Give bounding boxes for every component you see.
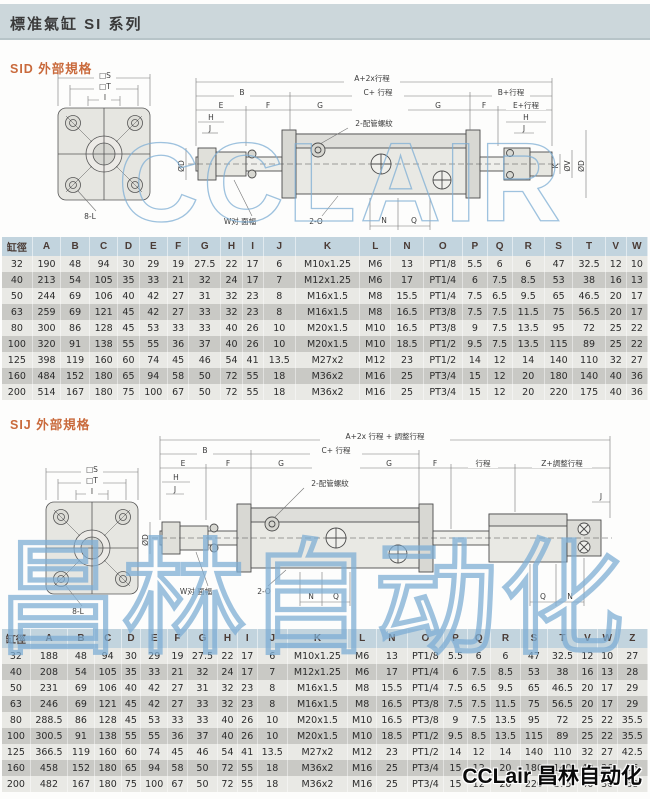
table-cell: 54 xyxy=(218,744,238,760)
table-cell: 40 xyxy=(2,272,32,288)
table-cell: 25 xyxy=(377,760,407,776)
table-cell: 72 xyxy=(221,368,242,384)
column-header: L xyxy=(360,237,391,256)
table-cell: 32.5 xyxy=(547,648,577,664)
table-row: 50244691064042273132238M16x1.5M815.5PT1/… xyxy=(2,288,648,304)
table-cell: 26 xyxy=(242,320,263,336)
sid-dim-square-s: □S xyxy=(99,71,111,80)
table-cell: 484 xyxy=(32,368,61,384)
table-cell: 180 xyxy=(89,368,118,384)
table-cell: 20 xyxy=(605,304,626,320)
sij-diagram: □S □T I 8-L A+2x 行程 xyxy=(0,426,650,626)
table-cell: PT1/4 xyxy=(407,680,444,696)
table-cell: 53 xyxy=(139,320,168,336)
column-header: S xyxy=(521,629,548,648)
table-cell: 33 xyxy=(168,712,188,728)
table-cell: 14 xyxy=(512,352,544,368)
table-cell: 22 xyxy=(218,648,238,664)
table-cell: 115 xyxy=(521,728,548,744)
table-cell: 13 xyxy=(391,256,423,272)
column-header: W xyxy=(597,629,617,648)
table-cell: 140 xyxy=(544,352,573,368)
table-cell: 6 xyxy=(487,256,512,272)
table-cell: M10 xyxy=(348,728,377,744)
table-cell: 53 xyxy=(544,272,573,288)
table-cell: PT3/4 xyxy=(407,776,444,792)
table-cell: 72 xyxy=(218,776,238,792)
table-cell: 213 xyxy=(32,272,61,288)
table-cell: 55 xyxy=(242,368,263,384)
table-cell: PT1/4 xyxy=(407,664,444,680)
column-header: R xyxy=(490,629,520,648)
sij-dim-g2: G xyxy=(386,459,392,468)
table-cell: 74 xyxy=(141,744,168,760)
table-cell: 27 xyxy=(597,744,617,760)
table-cell: 40 xyxy=(121,680,141,696)
column-header: J xyxy=(263,237,295,256)
table-cell: PT3/4 xyxy=(407,760,444,776)
table-cell: 16.5 xyxy=(391,304,423,320)
sij-flange-view xyxy=(46,502,138,594)
column-header: F xyxy=(168,629,188,648)
table-cell: 50 xyxy=(187,760,217,776)
table-cell: 100 xyxy=(139,384,168,400)
column-header: D xyxy=(121,629,141,648)
table-cell: 36 xyxy=(168,728,188,744)
table-cell: 22 xyxy=(597,712,617,728)
table-cell: 27 xyxy=(168,304,189,320)
table-cell: 121 xyxy=(89,304,118,320)
column-header: J xyxy=(257,629,287,648)
table-cell: 65 xyxy=(521,680,548,696)
table-cell: 7.5 xyxy=(462,288,487,304)
column-header: P xyxy=(462,237,487,256)
table-cell: 15 xyxy=(462,368,487,384)
table-cell: 244 xyxy=(32,288,61,304)
table-cell: 41 xyxy=(237,744,257,760)
table-cell: 40 xyxy=(118,288,139,304)
table-cell: 56.5 xyxy=(573,304,605,320)
table-cell: M10 xyxy=(360,320,391,336)
table-cell: 33 xyxy=(141,664,168,680)
table-cell: 15.5 xyxy=(391,288,423,304)
table-cell: 9.5 xyxy=(512,288,544,304)
table-cell: 7.5 xyxy=(462,304,487,320)
table-cell: 9.5 xyxy=(444,728,467,744)
column-header: S xyxy=(544,237,573,256)
sij-dim-c: C+ 行程 xyxy=(322,445,351,455)
column-header: R xyxy=(512,237,544,256)
table-cell: 7 xyxy=(257,664,287,680)
table-cell: 33 xyxy=(189,304,221,320)
table-cell: 74 xyxy=(139,352,168,368)
column-header: G xyxy=(189,237,221,256)
table-cell: 20 xyxy=(578,696,598,712)
sid-bore-d2-label: ØD xyxy=(177,160,186,172)
sid-rod-v-label: ØV xyxy=(563,160,572,172)
sid-dim-c: C+ 行程 xyxy=(364,87,393,97)
table-cell: 38 xyxy=(547,664,577,680)
table-cell: 21 xyxy=(168,664,188,680)
table-cell: 94 xyxy=(89,256,118,272)
table-row: 200514167180751006750725518M36x2M1625PT3… xyxy=(2,384,648,400)
sid-bore-d-label: ØD xyxy=(577,160,586,172)
sij-dim-h: H xyxy=(173,473,179,482)
table-cell: 31 xyxy=(187,680,217,696)
table-cell: 23 xyxy=(242,304,263,320)
table-cell: 13 xyxy=(626,272,647,288)
table-cell: 20 xyxy=(512,368,544,384)
table-cell: M8 xyxy=(360,304,391,320)
table-cell: 26 xyxy=(242,336,263,352)
table-cell: 138 xyxy=(94,728,121,744)
table-cell: M10x1.25 xyxy=(295,256,359,272)
table-cell: 54 xyxy=(221,352,242,368)
sid-side-view xyxy=(188,130,560,198)
sij-dim-g: G xyxy=(278,459,284,468)
column-header: A xyxy=(30,629,67,648)
table-cell: 46.5 xyxy=(573,288,605,304)
table-cell: 40 xyxy=(221,336,242,352)
sij-dim-e: E xyxy=(181,459,186,468)
table-cell: 35 xyxy=(121,664,141,680)
table-cell: 45 xyxy=(121,712,141,728)
table-cell: 7.5 xyxy=(487,304,512,320)
column-header: E xyxy=(139,237,168,256)
table-cell: 45 xyxy=(168,744,188,760)
table-cell: 25 xyxy=(578,728,598,744)
table-cell: PT1/2 xyxy=(407,744,444,760)
sid-dim-b-stroke: B+行程 xyxy=(498,87,525,97)
sij-dim-stroke: 行程 xyxy=(476,458,491,468)
table-cell: 17 xyxy=(237,648,257,664)
table-cell: PT1/2 xyxy=(407,728,444,744)
table-cell: 32 xyxy=(218,696,238,712)
table-cell: 8 xyxy=(263,288,295,304)
table-cell: 100 xyxy=(2,728,30,744)
sid-dim-h2: H xyxy=(523,113,529,122)
column-header: I xyxy=(242,237,263,256)
table-cell: 10 xyxy=(263,320,295,336)
table-cell: 17 xyxy=(626,288,647,304)
table-cell: 110 xyxy=(547,744,577,760)
table-cell: 18.5 xyxy=(377,728,407,744)
table-cell: M6 xyxy=(360,272,391,288)
table-cell: M36x2 xyxy=(295,368,359,384)
column-header: C xyxy=(89,237,118,256)
table-cell: 18 xyxy=(257,776,287,792)
table-cell: 119 xyxy=(61,352,90,368)
table-cell: 40 xyxy=(218,712,238,728)
column-header: K xyxy=(295,237,359,256)
column-header: G xyxy=(187,629,217,648)
table-cell: 18.5 xyxy=(391,336,423,352)
sid-flange-view xyxy=(58,108,150,200)
column-header: O xyxy=(407,629,444,648)
table-cell: 50 xyxy=(189,384,221,400)
table-row: 12539811916060744546544113.5M27x2M1223PT… xyxy=(2,352,648,368)
table-cell: 58 xyxy=(168,368,189,384)
table-cell: 180 xyxy=(89,384,118,400)
table-cell: PT1/2 xyxy=(423,352,462,368)
table-cell: 7.5 xyxy=(467,696,490,712)
table-cell: 65 xyxy=(121,760,141,776)
table-cell: 46.5 xyxy=(547,680,577,696)
table-cell: 50 xyxy=(187,776,217,792)
table-cell: 259 xyxy=(32,304,61,320)
table-cell: 23 xyxy=(391,352,423,368)
table-cell: 25 xyxy=(377,776,407,792)
sid-dim-f: F xyxy=(266,101,270,110)
table-row: 100300.59113855553637402610M20x1.5M1018.… xyxy=(2,728,648,744)
sij-dim-square-s: □S xyxy=(86,465,98,474)
table-cell: 200 xyxy=(2,776,30,792)
table-cell: 180 xyxy=(94,760,121,776)
table-cell: 72 xyxy=(573,320,605,336)
sij-dim-n2: N xyxy=(567,592,573,601)
table-cell: 10 xyxy=(257,712,287,728)
table-cell: 180 xyxy=(544,368,573,384)
table-cell: 7.5 xyxy=(444,680,467,696)
table-cell: 9 xyxy=(444,712,467,728)
table-cell: M16x1.5 xyxy=(287,696,347,712)
table-cell: 47 xyxy=(521,648,548,664)
table-cell: 22 xyxy=(597,728,617,744)
column-header: V xyxy=(605,237,626,256)
sij-dim-f2: F xyxy=(433,459,437,468)
table-cell: 366.5 xyxy=(30,744,67,760)
table-cell: 13.5 xyxy=(257,744,287,760)
column-header: H xyxy=(221,237,242,256)
table-cell: 75 xyxy=(544,304,573,320)
table-cell: 55 xyxy=(139,336,168,352)
table-cell: M36x2 xyxy=(295,384,359,400)
table-cell: 140 xyxy=(521,744,548,760)
table-cell: 45 xyxy=(118,320,139,336)
sid-dim-e: E xyxy=(219,101,224,110)
table-cell: 56.5 xyxy=(547,696,577,712)
table-cell: 7.5 xyxy=(487,320,512,336)
table-cell: M16x1.5 xyxy=(287,680,347,696)
table-cell: 55 xyxy=(121,728,141,744)
table-cell: 23 xyxy=(377,744,407,760)
table-cell: 6 xyxy=(512,256,544,272)
table-cell: 38 xyxy=(573,272,605,288)
table-cell: 6 xyxy=(467,648,490,664)
table-cell: 8.5 xyxy=(490,664,520,680)
table-cell: 40 xyxy=(605,368,626,384)
table-cell: 27.5 xyxy=(189,256,221,272)
table-cell: 69 xyxy=(68,680,95,696)
table-cell: 16 xyxy=(578,664,598,680)
table-cell: 42.5 xyxy=(617,744,647,760)
table-cell: 20 xyxy=(512,384,544,400)
table-cell: 138 xyxy=(89,336,118,352)
table-cell: 5.5 xyxy=(444,648,467,664)
table-cell: 32.5 xyxy=(573,256,605,272)
table-cell: 32 xyxy=(2,256,32,272)
table-cell: 72 xyxy=(547,712,577,728)
table-cell: M36x2 xyxy=(287,760,347,776)
table-cell: 9.5 xyxy=(462,336,487,352)
table-cell: M12 xyxy=(348,744,377,760)
table-cell: 180 xyxy=(94,776,121,792)
sid-table: 缸徑ABCDEFGHIJKLNOPQRSTVW 3219048943029192… xyxy=(2,237,648,400)
table-cell: 91 xyxy=(61,336,90,352)
table-cell: 23 xyxy=(242,288,263,304)
table-cell: 36 xyxy=(168,336,189,352)
table-cell: 152 xyxy=(68,760,95,776)
table-cell: 48 xyxy=(68,648,95,664)
column-header: F xyxy=(168,237,189,256)
sij-dim-n: N xyxy=(308,592,314,601)
table-cell: 18 xyxy=(263,368,295,384)
table-cell: 75 xyxy=(118,384,139,400)
table-cell: 45 xyxy=(118,304,139,320)
table-cell: M20x1.5 xyxy=(295,336,359,352)
table-cell: 75 xyxy=(521,696,548,712)
table-cell: 55 xyxy=(242,384,263,400)
sij-dim-j: J xyxy=(173,485,176,494)
table-cell: 105 xyxy=(89,272,118,288)
table-cell: 32 xyxy=(578,744,598,760)
table-cell: 48 xyxy=(61,256,90,272)
table-cell: M6 xyxy=(348,648,377,664)
table-cell: 175 xyxy=(573,384,605,400)
table-cell: 46 xyxy=(189,352,221,368)
table-cell: 8 xyxy=(257,696,287,712)
table-cell: PT3/4 xyxy=(423,368,462,384)
column-header: T xyxy=(573,237,605,256)
table-cell: PT3/4 xyxy=(423,384,462,400)
table-cell: M8 xyxy=(348,680,377,696)
table-cell: 32 xyxy=(218,680,238,696)
table-cell: 13.5 xyxy=(490,712,520,728)
table-cell: 69 xyxy=(61,288,90,304)
table-cell: 25 xyxy=(605,320,626,336)
table-cell: M6 xyxy=(348,664,377,680)
table-cell: 33 xyxy=(187,696,217,712)
table-cell: 27.5 xyxy=(187,648,217,664)
table-cell: 47 xyxy=(544,256,573,272)
table-cell: 63 xyxy=(2,696,30,712)
table-cell: M16 xyxy=(348,776,377,792)
table-cell: 35.5 xyxy=(617,728,647,744)
table-cell: M16 xyxy=(360,384,391,400)
table-cell: 121 xyxy=(94,696,121,712)
table-cell: 27 xyxy=(626,352,647,368)
column-header: B xyxy=(68,629,95,648)
table-cell: 15.5 xyxy=(377,680,407,696)
table-cell: 65 xyxy=(118,368,139,384)
table-cell: 190 xyxy=(32,256,61,272)
table-cell: 40 xyxy=(605,384,626,400)
table-cell: 7.5 xyxy=(487,336,512,352)
table-cell: M20x1.5 xyxy=(295,320,359,336)
table-cell: 152 xyxy=(61,368,90,384)
table-cell: 25 xyxy=(605,336,626,352)
table-cell: 12 xyxy=(487,352,512,368)
sid-dim-n: N xyxy=(381,216,387,225)
sij-dim-b: B xyxy=(202,446,207,455)
table-cell: 53 xyxy=(521,664,548,680)
column-header: H xyxy=(218,629,238,648)
table-cell: 458 xyxy=(30,760,67,776)
table-cell: 29 xyxy=(617,696,647,712)
table-cell: 69 xyxy=(61,304,90,320)
table-cell: 42 xyxy=(139,304,168,320)
table-cell: 6.5 xyxy=(487,288,512,304)
column-header: N xyxy=(377,629,407,648)
table-cell: 17 xyxy=(242,272,263,288)
sid-dim-e-stroke: E+行程 xyxy=(513,100,540,110)
sij-dim-z: Z+調整行程 xyxy=(541,458,583,468)
sij-holes-label: 8-L xyxy=(72,607,84,616)
table-cell: 35.5 xyxy=(617,712,647,728)
column-header: E xyxy=(141,629,168,648)
table-cell: 95 xyxy=(544,320,573,336)
table-cell: 40 xyxy=(221,320,242,336)
table-cell: 33 xyxy=(139,272,168,288)
table-cell: 32 xyxy=(2,648,30,664)
table-cell: 40 xyxy=(2,664,30,680)
header-row: 缸徑ABCDEFGHIJKLNOPQRSTVWZ xyxy=(2,629,648,648)
table-cell: 60 xyxy=(118,352,139,368)
table-cell: 105 xyxy=(94,664,121,680)
table-cell: 29 xyxy=(617,680,647,696)
table-cell: 37 xyxy=(187,728,217,744)
header-row: 缸徑ABCDEFGHIJKLNOPQRSTVW xyxy=(2,237,648,256)
table-cell: 320 xyxy=(32,336,61,352)
table-cell: 63 xyxy=(2,304,32,320)
table-cell: 160 xyxy=(2,368,32,384)
table-row: 40208541053533213224177M12x1.25M617PT1/4… xyxy=(2,664,648,680)
table-cell: 9.5 xyxy=(490,680,520,696)
table-cell: 30 xyxy=(118,256,139,272)
table-cell: 14 xyxy=(444,744,467,760)
sij-dim-i: I xyxy=(91,487,93,496)
table-cell: M12x1.25 xyxy=(295,272,359,288)
table-cell: 10 xyxy=(263,336,295,352)
table-cell: 72 xyxy=(221,384,242,400)
table-cell: 55 xyxy=(141,728,168,744)
table-cell: 26 xyxy=(237,728,257,744)
table-cell: 58 xyxy=(168,760,188,776)
table-cell: 42 xyxy=(141,696,168,712)
table-cell: 95 xyxy=(521,712,548,728)
table-cell: 482 xyxy=(30,776,67,792)
table-cell: M10 xyxy=(348,712,377,728)
column-header: L xyxy=(348,629,377,648)
table-cell: 398 xyxy=(32,352,61,368)
table-cell: 86 xyxy=(68,712,95,728)
table-cell: 89 xyxy=(547,728,577,744)
sid-flats-label: W对 面幅 xyxy=(224,216,257,226)
table-cell: 13.5 xyxy=(512,320,544,336)
table-cell: 140 xyxy=(573,368,605,384)
column-header: Z xyxy=(617,629,647,648)
table-cell: 69 xyxy=(68,696,95,712)
table-row: 63259691214542273332238M16x1.5M816.5PT3/… xyxy=(2,304,648,320)
table-cell: 26 xyxy=(237,712,257,728)
sid-dim-j: J xyxy=(208,124,211,133)
sid-dim-j2: J xyxy=(522,124,525,133)
table-cell: M27x2 xyxy=(287,744,347,760)
page-title: 標准氣缸 SI 系列 xyxy=(0,4,650,34)
table-cell: M27x2 xyxy=(295,352,359,368)
column-header: Q xyxy=(487,237,512,256)
table-cell: 100 xyxy=(2,336,32,352)
